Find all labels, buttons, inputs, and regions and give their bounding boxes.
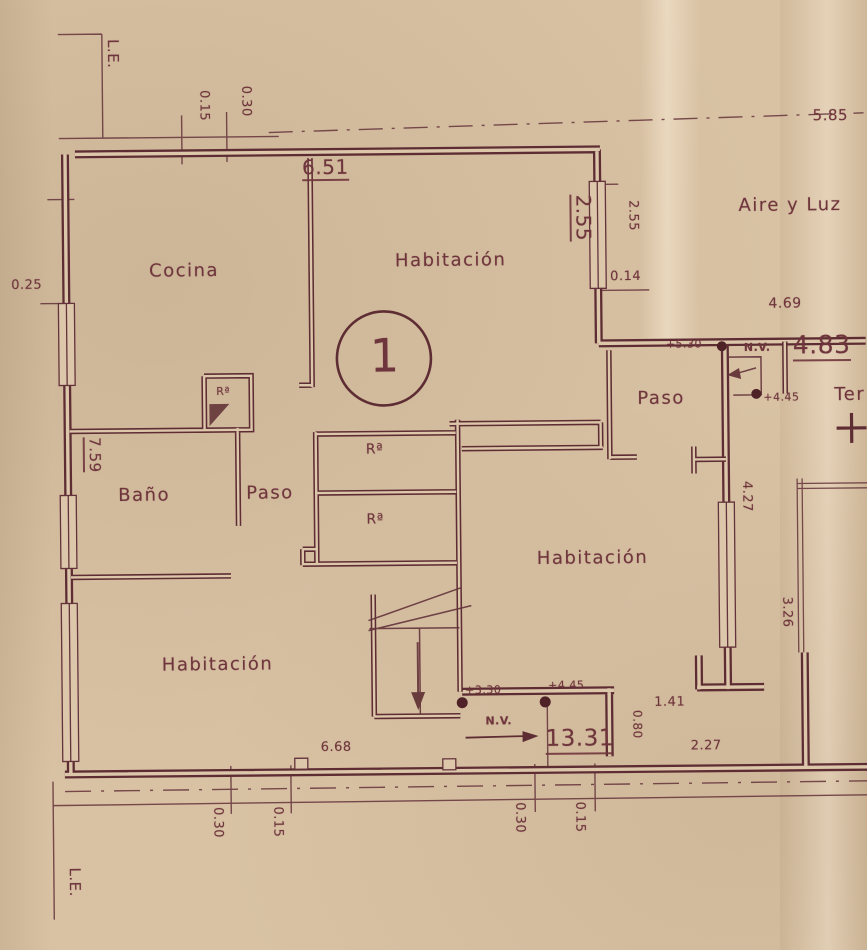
property-dash-line [269,113,864,133]
landing-arrow-head [727,368,741,379]
building-line-top [58,34,103,138]
plan-linework [0,0,867,950]
dim-015-top: 0.15 [197,90,210,121]
stair-arrow-head [411,692,425,710]
dim-759: 7.59 [83,437,102,473]
room-label-habitacion-right: Habitación [537,549,649,568]
room-label-terraza-clipped: Ter [834,386,865,404]
room-label-aire-y-luz: Aire y Luz [738,196,841,215]
level-530: +5.30 [666,338,702,349]
dim-427: 4.27 [740,481,753,512]
nv-mark-lower: N.V. [485,715,512,726]
sidewalk-dash-bottom [65,781,867,792]
inner-walls [67,154,788,720]
dim-483: 4.83 [793,332,851,362]
level-330: +3.30 [465,684,501,695]
dim-015-bottom-left: 0.15 [271,806,284,837]
room-label-habitacion-top: Habitación [395,251,507,270]
building-line-label-bottom: L.E. [67,867,82,897]
sidewalk-line-solid [59,136,279,138]
building-line-label-top: L.E. [105,39,120,69]
shaft-hatch [209,404,229,426]
room-label-paso-upper: Paso [637,390,685,408]
dim-015-bottom-right: 0.15 [573,802,586,833]
dim-585: 5.85 [813,108,849,123]
room-label-cocina: Cocina [149,262,219,281]
dim-030-top: 0.30 [239,86,252,117]
room-label-habitacion-bottom: Habitación [162,656,274,675]
dim-1331: 13.31 [545,727,614,755]
sidewalk-line-bottom [53,795,867,806]
closet-label-2: Rª [366,512,383,526]
dim-255-window: 2.55 [626,200,639,231]
closet-label-1: Rª [366,442,383,456]
dim-326: 3.26 [780,597,793,628]
dim-030-bottom-left: 0.30 [211,807,224,838]
floor-plan-photo: L.E. 0.15 0.30 5.85 Aire y Luz 6.51 2.55… [0,0,867,950]
dim-227: 2.27 [691,739,722,752]
dim-469: 4.69 [768,296,801,310]
entry-arrow [466,731,539,743]
terrace-cross-mark [836,413,866,443]
dim-668: 6.68 [321,741,352,754]
outer-walls [59,147,867,775]
terrace-boundary [797,478,867,653]
room-label-bano: Baño [118,486,170,504]
dim-255-room: 2.55 [569,194,593,241]
dim-025: 0.25 [11,279,42,292]
dim-080: 0.80 [631,710,643,739]
dim-141: 1.41 [654,696,685,709]
unit-number: 1 [370,332,400,378]
landing-arrow [738,368,756,373]
closet-label-shaft: Rª [216,386,230,397]
floor-plan: L.E. 0.15 0.30 5.85 Aire y Luz 6.51 2.55… [0,0,867,950]
dim-651: 6.51 [302,157,349,181]
level-445-upper: +4.45 [763,391,799,402]
building-line-bottom [53,782,54,920]
room-label-paso-center: Paso [246,484,294,502]
property-lines [38,27,867,920]
dim-030-bottom-right: 0.30 [513,802,526,833]
dim-014: 0.14 [610,270,641,283]
nv-mark-upper: N.V. [744,342,771,353]
level-445-lower: +4.45 [548,680,584,691]
